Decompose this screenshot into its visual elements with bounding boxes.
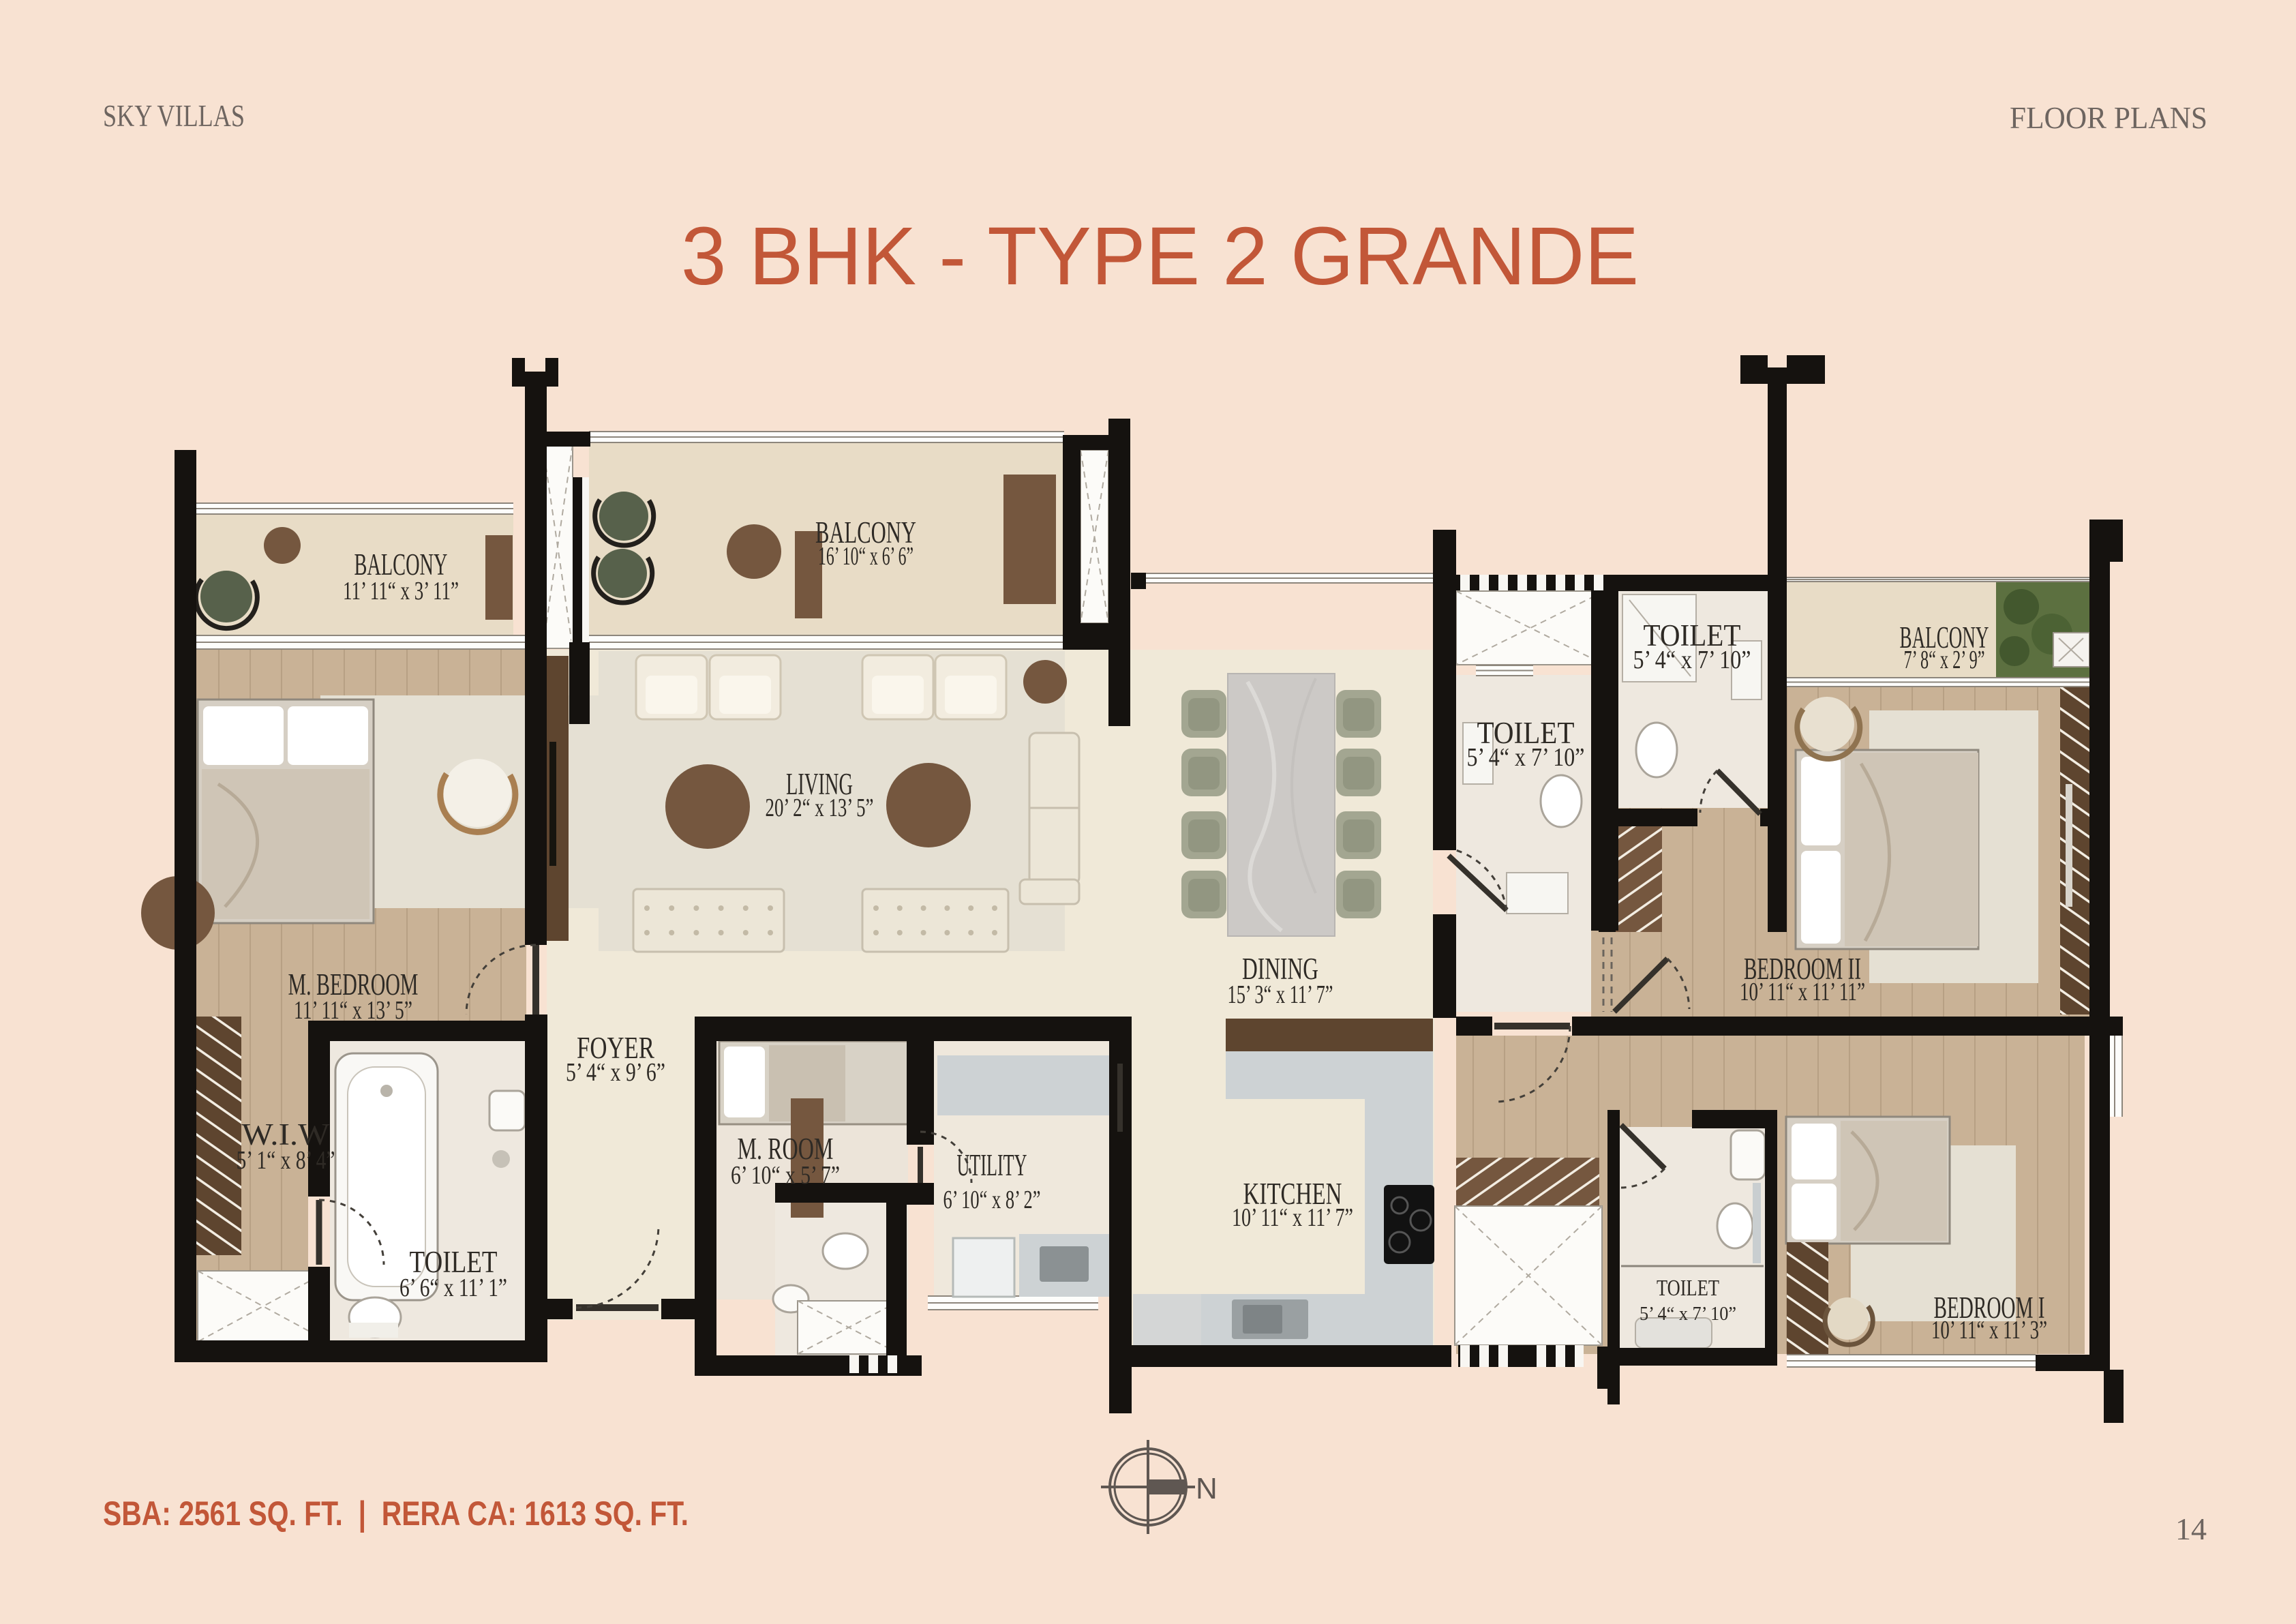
svg-text:15’ 3“ x 11’ 7”: 15’ 3“ x 11’ 7” (1228, 980, 1333, 1009)
svg-text:6’ 10“ x 5’ 7”: 6’ 10“ x 5’ 7” (731, 1161, 840, 1190)
svg-text:SBA: 2561 SQ. FT. | RERA CA:: SBA: 2561 SQ. FT. | RERA CA: 1613 SQ. FT… (103, 1494, 689, 1533)
svg-text:6’ 10“ x 8’ 2”: 6’ 10“ x 8’ 2” (943, 1186, 1041, 1214)
svg-text:TOILET: TOILET (1657, 1276, 1719, 1301)
svg-text:20’ 2“ x 13’ 5”: 20’ 2“ x 13’ 5” (766, 794, 874, 822)
svg-text:5’ 4“ x 9’ 6”: 5’ 4“ x 9’ 6” (566, 1058, 665, 1087)
svg-text:7’ 8“ x 2’ 9”: 7’ 8“ x 2’ 9” (1904, 646, 1985, 674)
svg-text:UTILITY: UTILITY (957, 1148, 1027, 1182)
svg-text:5’ 4“ x 7’ 10”: 5’ 4“ x 7’ 10” (1633, 646, 1751, 674)
svg-text:10’ 11“ x 11’ 7”: 10’ 11“ x 11’ 7” (1232, 1203, 1353, 1232)
svg-text:N: N (1196, 1472, 1218, 1505)
svg-text:SKY VILLAS: SKY VILLAS (103, 99, 245, 133)
svg-text:10’ 11“ x 11’ 3”: 10’ 11“ x 11’ 3” (1931, 1316, 2047, 1344)
svg-text:5’ 4“ x 7’ 10”: 5’ 4“ x 7’ 10” (1640, 1303, 1736, 1325)
svg-text:11’ 11“ x 3’ 11”: 11’ 11“ x 3’ 11” (343, 577, 459, 605)
svg-text:FLOOR PLANS: FLOOR PLANS (2010, 101, 2207, 135)
svg-text:6’ 6“ x 11’ 1”: 6’ 6“ x 11’ 1” (399, 1274, 507, 1302)
svg-text:16’ 10“ x 6’ 6”: 16’ 10“ x 6’ 6” (818, 542, 913, 571)
svg-text:14: 14 (2175, 1512, 2207, 1546)
svg-text:5’ 1“ x 8’ 4”: 5’ 1“ x 8’ 4” (237, 1146, 335, 1175)
svg-text:5’ 4“ x 7’ 10”: 5’ 4“ x 7’ 10” (1467, 743, 1585, 772)
svg-text:10’ 11“ x 11’ 11”: 10’ 11“ x 11’ 11” (1740, 978, 1865, 1006)
svg-text:3 BHK - TYPE 2 GRANDE: 3 BHK - TYPE 2 GRANDE (681, 209, 1639, 302)
svg-text:11’ 11“ x 13’ 5”: 11’ 11“ x 13’ 5” (294, 996, 412, 1025)
